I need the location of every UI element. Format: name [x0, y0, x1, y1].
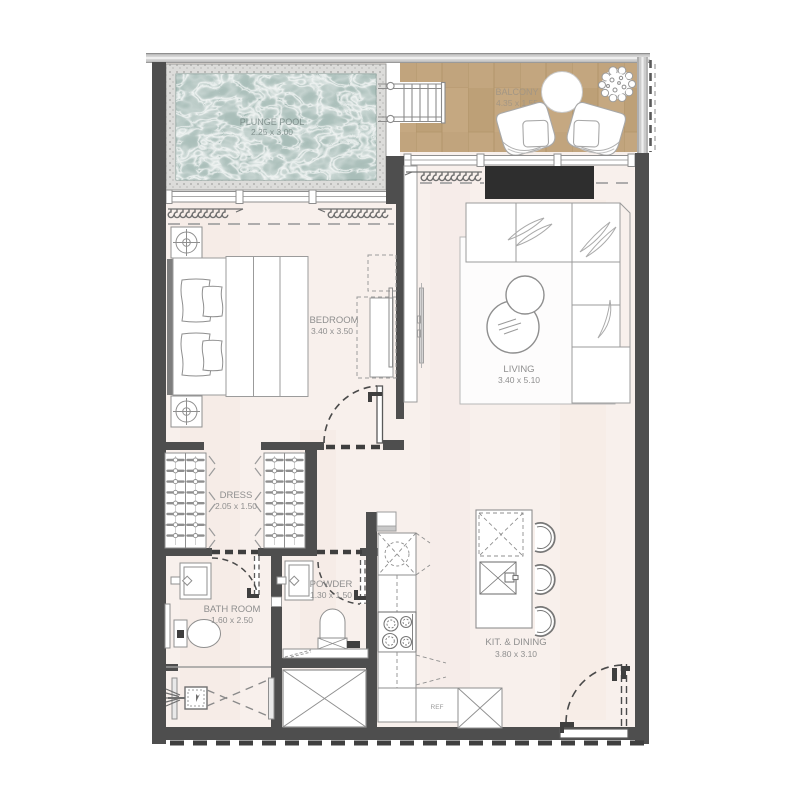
svg-text:KIT. & DINING: KIT. & DINING: [485, 637, 546, 648]
svg-text:1.30 x 1.50: 1.30 x 1.50: [310, 590, 352, 600]
svg-text:BALCONY: BALCONY: [495, 87, 538, 97]
svg-text:3.40 x 3.50: 3.40 x 3.50: [311, 326, 353, 336]
svg-text:LIVING: LIVING: [503, 364, 534, 375]
svg-text:3.40 x 5.10: 3.40 x 5.10: [498, 375, 540, 385]
svg-text:2.05 x 1.50: 2.05 x 1.50: [215, 501, 257, 511]
svg-text:BEDROOM: BEDROOM: [309, 315, 358, 326]
svg-text:DRESS: DRESS: [220, 490, 253, 501]
svg-text:PLUNGE POOL: PLUNGE POOL: [240, 117, 305, 127]
svg-text:POWDER: POWDER: [310, 579, 353, 590]
svg-text:REF: REF: [431, 704, 444, 711]
svg-text:1.60 x 2.50: 1.60 x 2.50: [211, 615, 253, 625]
svg-text:BATH ROOM: BATH ROOM: [204, 604, 261, 615]
svg-text:2.25 x 3.00: 2.25 x 3.00: [251, 127, 293, 137]
svg-text:3.80 x 3.10: 3.80 x 3.10: [495, 649, 537, 659]
